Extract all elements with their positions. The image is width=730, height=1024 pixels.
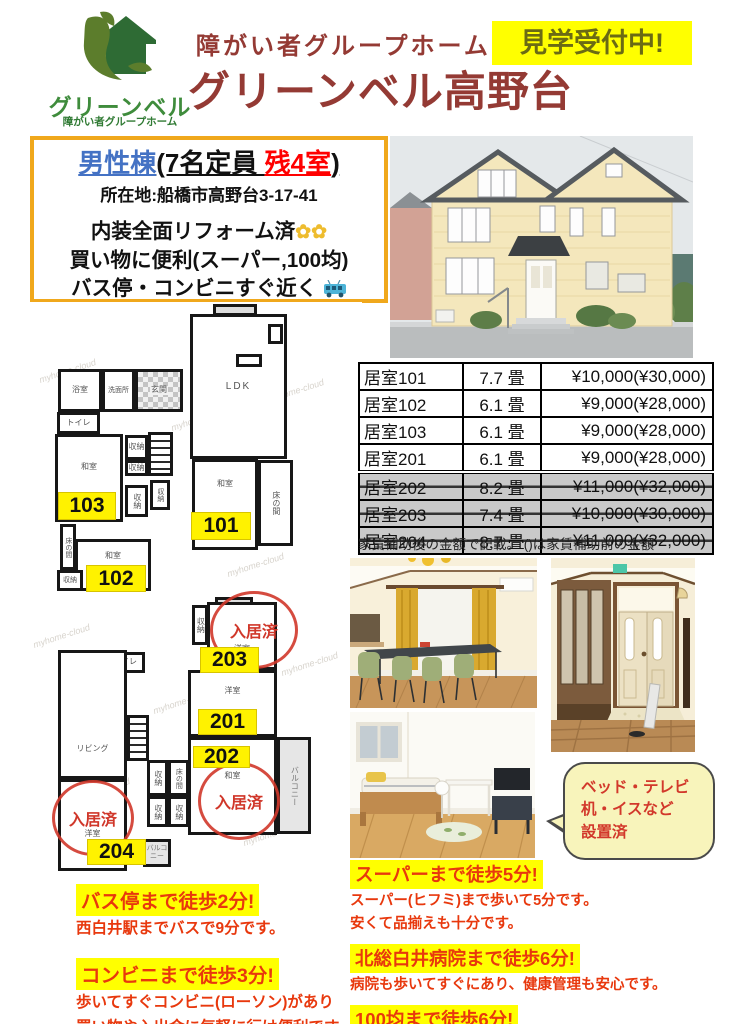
balcony-right: バルコニー (277, 737, 311, 834)
exterior-photo (390, 136, 693, 358)
room-living: リビング (58, 650, 127, 779)
occupied-mark-202: 入居済 (198, 762, 280, 840)
page-title: グリーンベル高野台 (188, 58, 573, 119)
greenbell-logo-icon (58, 10, 168, 93)
closet: 収納 (147, 796, 168, 827)
building-name: 男性棟 (78, 148, 156, 178)
table-row: 居室201 6.1 畳 ¥9,000(¥28,000) (359, 444, 713, 472)
room-tag-102: 102 (86, 565, 146, 592)
alcove: 床の間 (168, 760, 189, 796)
access-headline: 北総白井病院まで徒歩6分! (350, 944, 580, 973)
vacancy-count: 残4室 (265, 148, 331, 178)
furnished-bubble: ベッド・テレビ 机・イスなど 設置済 (563, 762, 715, 860)
access-bus-stop: バス停まで徒歩2分! 西白井駅までバスで9分です。 (76, 884, 366, 940)
closet: 収納 (125, 435, 148, 460)
alcove: 床の間 (258, 460, 293, 546)
feature-renovated: 内装全面リフォーム済✿✿ (34, 218, 384, 247)
feature-shopping: 買い物に便利(スーパー,100均) (34, 247, 384, 276)
watermark: myhome-cloud (280, 650, 339, 678)
balcony-bottom: バルコニー (143, 839, 171, 867)
watermark: myhome-cloud (32, 622, 91, 650)
access-hospital: 北総白井病院まで徒歩6分! 病院も歩いてすぐにあり、健康管理も安心です。 (350, 944, 728, 996)
access-info-left: バス停まで徒歩2分! 西白井駅までバスで9分です。 コンビニまで徒歩3分! 歩い… (76, 884, 366, 1024)
table-row-occupied: 居室203 7.4 畳 ¥10,000(¥30,000) (359, 500, 713, 527)
room-tag-202: 202 (193, 746, 250, 768)
room-tag-204: 204 (87, 839, 146, 865)
access-headline: スーパーまで徒歩5分! (350, 860, 543, 889)
alcove: 床の間 (60, 524, 76, 570)
flower-icon: ✿✿ (295, 222, 327, 243)
table-note: 家賃補助後の金額で記載。 ()は家賃補助前の金額 (358, 533, 654, 553)
room-tag-201: 201 (198, 709, 257, 735)
kitchen-unit (268, 324, 283, 344)
bedroom-photo (350, 712, 535, 858)
dining-room-photo (350, 558, 537, 708)
visit-badge: 見学受付中! (492, 21, 692, 65)
header-category: 障がい者グループホーム (196, 26, 491, 61)
table-row-occupied: 居室202 8.2 畳 ¥11,000(¥32,000) (359, 472, 713, 500)
access-supermarket: スーパーまで徒歩5分! スーパー(ヒフミ)まで歩いて5分です。 安くて品揃えも十… (350, 860, 728, 935)
building-capacity-line: 男性棟(7名定員 残4室) (34, 143, 384, 180)
table-row: 居室102 6.1 畳 ¥9,000(¥28,000) (359, 390, 713, 417)
access-convenience-store: コンビニまで徒歩3分! 歩いてすぐコンビニ(ローソン)があり 買い物や入出金に気… (76, 958, 366, 1024)
closet: 収納 (168, 796, 189, 827)
closet: 収納 (192, 605, 208, 645)
closet: 収納 (125, 485, 148, 517)
access-hundred-yen-shop: 100均まで徒歩6分! 100均(セリア)まで歩いて6分。 (350, 1005, 728, 1024)
table-row: 居室101 7.7 畳 ¥10,000(¥30,000) (359, 363, 713, 390)
room-bath: 浴室 (58, 369, 102, 412)
flyer-page: グリーンベル 障がい者グループホーム 障がい者グループホーム グリーンベル高野台… (0, 0, 730, 1024)
access-headline: 100均まで徒歩6分! (350, 1005, 518, 1024)
closet: 収納 (125, 460, 148, 476)
closet: 収納 (57, 570, 83, 591)
closet: 収納 (150, 480, 170, 510)
floorplan-2f: myhome-cloud myhome-cloud myhome-cloud m… (30, 597, 362, 885)
floorplan-1f: myhome-cloud myhome-cloud myhome-cloud m… (30, 302, 362, 594)
watermark: myhome-cloud (226, 551, 285, 579)
entrance-photo (551, 558, 695, 752)
access-headline: コンビニまで徒歩3分! (76, 958, 279, 990)
access-headline: バス停まで徒歩2分! (76, 884, 259, 916)
room-tag-101: 101 (191, 512, 251, 540)
stairs-1f (148, 432, 173, 476)
room-entrance: 玄関 (135, 369, 183, 412)
room-tag-103: 103 (58, 492, 116, 520)
kitchen-sink (236, 354, 262, 367)
feature-list: 内装全面リフォーム済✿✿ 買い物に便利(スーパー,100均) バス停・コンビニす… (34, 218, 384, 307)
address-line: 所在地:船橋市高野台3-17-41 (34, 181, 384, 206)
room-washroom: 洗面所 (102, 369, 135, 412)
closet: 収納 (147, 760, 168, 796)
table-row: 居室103 6.1 畳 ¥9,000(¥28,000) (359, 417, 713, 444)
logo-tagline-text: 障がい者グループホーム (30, 114, 210, 129)
room-price-table: 居室101 7.7 畳 ¥10,000(¥30,000) 居室102 6.1 畳… (358, 362, 714, 555)
access-info-right: スーパーまで徒歩5分! スーパー(ヒフミ)まで歩いて5分です。 安くて品揃えも十… (350, 860, 728, 1024)
room-tag-203: 203 (200, 647, 259, 673)
info-box: 男性棟(7名定員 残4室) 所在地:船橋市高野台3-17-41 内装全面リフォー… (30, 136, 388, 303)
room-toilet-1f: トイレ (57, 412, 100, 434)
stairs-2f (127, 715, 149, 761)
